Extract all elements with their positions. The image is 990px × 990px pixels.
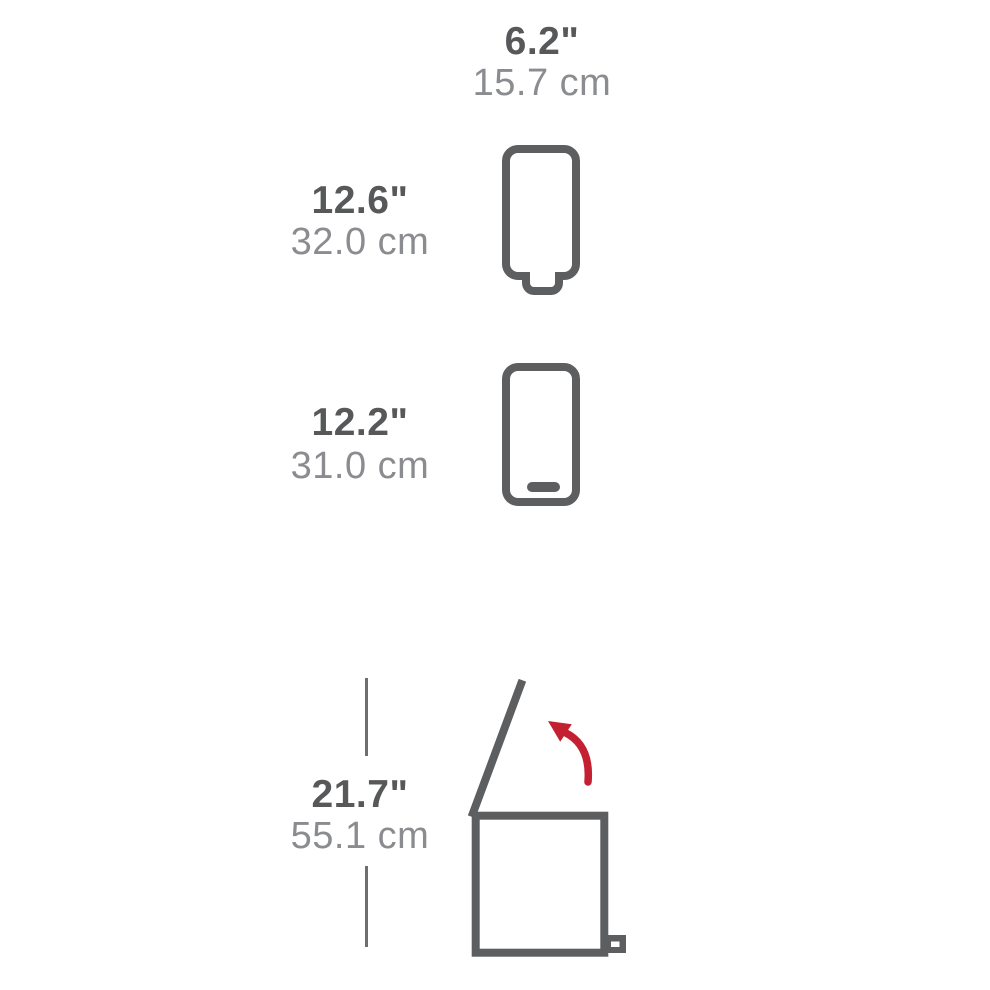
trash-can-front-outline-icon [502,145,580,280]
pedal-slot [611,942,620,948]
trash-can-pedal-side-icon [527,482,560,492]
trash-can-open-body [476,816,605,953]
open-height-inches-label: 21.7" [230,775,490,814]
height-inches-label: 12.6" [230,181,490,220]
dimension-line-top-segment [365,678,368,756]
dimensions-diagram: 6.2" 15.7 cm 12.6" 32.0 cm 12.2" 31.0 cm… [0,0,990,990]
depth-cm-label: 31.0 cm [230,447,490,485]
lid-open-arrow-shaft [566,733,588,782]
height-cm-label: 32.0 cm [230,223,490,261]
width-inches-label: 6.2" [412,22,672,61]
trash-can-lid-open-outline-icon [455,670,640,970]
open-lid-line [473,684,521,813]
dimension-line-bottom-segment [365,866,368,947]
width-cm-label: 15.7 cm [412,64,672,102]
trash-can-pedal-front-icon [522,272,563,295]
depth-inches-label: 12.2" [230,403,490,442]
open-height-cm-label: 55.1 cm [230,817,490,855]
